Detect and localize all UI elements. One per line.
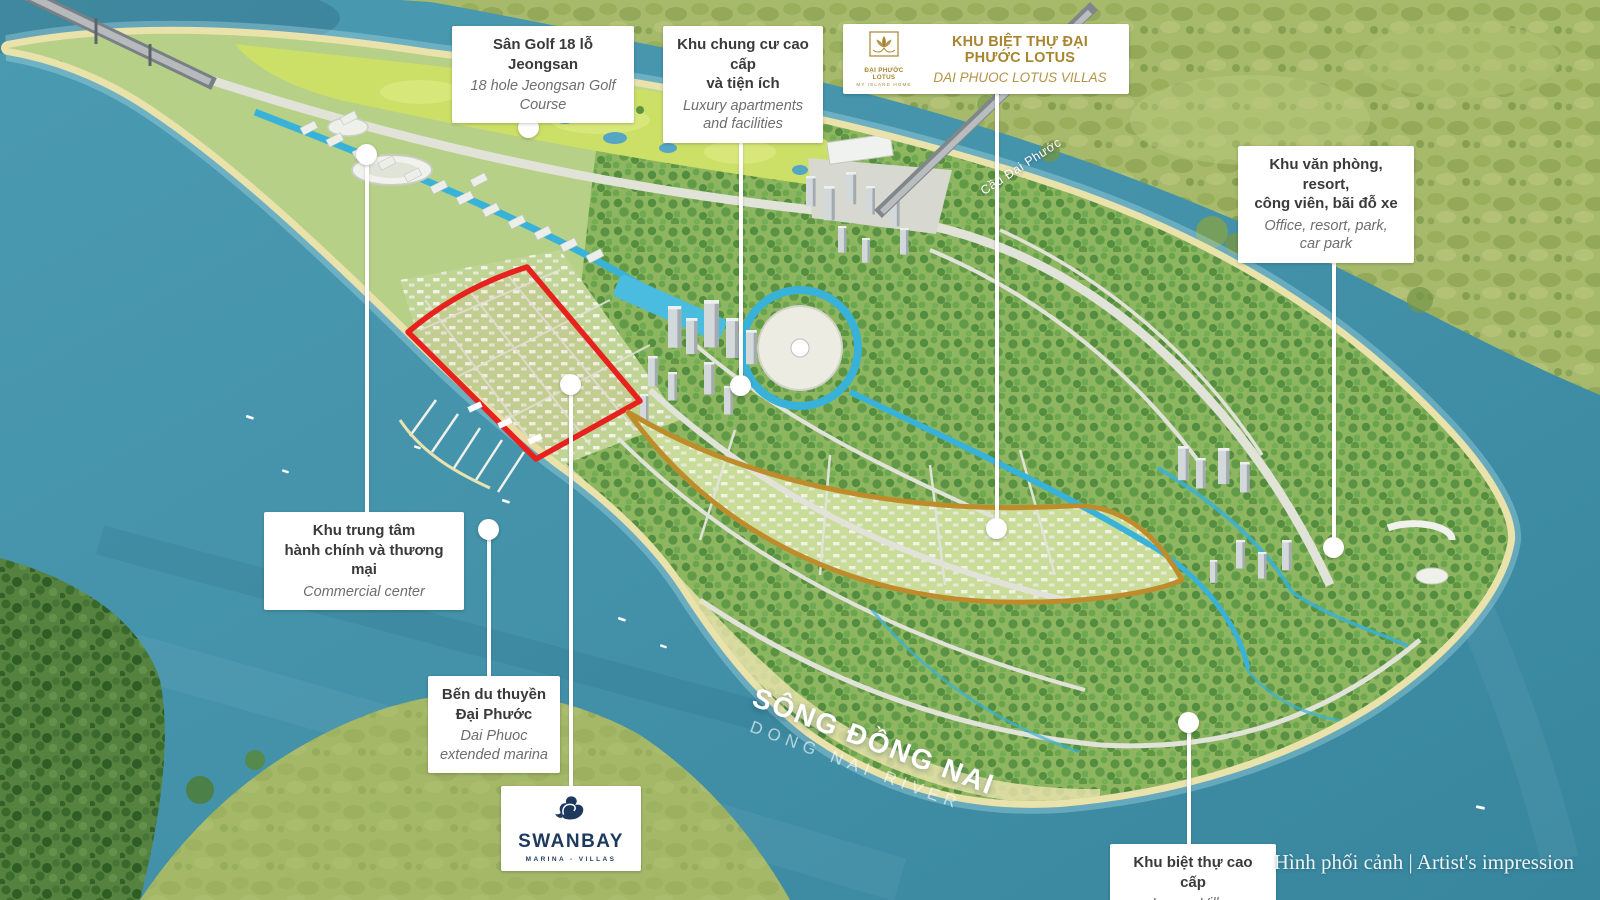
masterplan-screenshot: Sân Golf 18 lỗ Jeongsan 18 hole Jeongsan… [0,0,1600,900]
leader-dot-marina [478,519,499,540]
leader-line-swanbay [569,385,573,788]
label-marina-vi: Bến du thuyền Đại Phước [438,685,550,724]
label-lotus-title: KHU BIỆT THỰ ĐẠI PHƯỚC LOTUS [923,34,1117,66]
label-commercial-center: Khu trung tâm hành chính và thương mại C… [264,512,464,610]
leader-line-office [1332,237,1336,551]
lotus-flower-icon [865,31,903,61]
leader-dot-office [1323,537,1344,558]
label-luxury-en: Luxury Villas [1120,895,1266,900]
leader-line-luxury-villas [1187,723,1191,846]
leader-dot-luxury-villas [1178,712,1199,733]
artists-impression-caption: Hình phối cảnh | Artist's impression [1274,850,1574,875]
label-lotus-subtitle: DAI PHUOC LOTUS VILLAS [923,70,1117,85]
label-apartments: Khu chung cư cao cấp và tiện ích Luxury … [663,26,823,143]
label-luxury-vi: Khu biệt thự cao cấp [1120,853,1266,892]
label-office-resort: Khu văn phòng, resort, công viên, bãi đỗ… [1238,146,1414,263]
label-marina-en: Dai Phuoc extended marina [438,727,550,764]
label-golf-vi: Sân Golf 18 lỗ Jeongsan [462,35,624,74]
label-commercial-vi: Khu trung tâm hành chính và thương mại [274,521,454,580]
lotus-logo-tagline: MY ISLAND HOME [855,82,913,87]
swanbay-name: SWANBAY [507,831,635,853]
label-marina: Bến du thuyền Đại Phước Dai Phuoc extend… [428,676,560,773]
leader-line-apartments [739,101,743,389]
leader-dot-commercial [356,144,377,165]
label-swanbay-logo: SWANBAY MARINA - VILLAS [501,786,641,871]
leader-dot-swanbay [560,374,581,395]
label-apartments-vi: Khu chung cư cao cấp và tiện ích [673,35,813,94]
leader-line-lotus [995,88,999,532]
leader-dot-lotus [986,518,1007,539]
label-commercial-en: Commercial center [274,583,454,602]
swanbay-swan-icon [552,794,590,824]
leader-line-commercial [365,152,369,514]
leader-dot-apartments [730,375,751,396]
leader-line-marina [487,530,491,678]
lotus-logo-name: ĐẠI PHƯỚC LOTUS [855,67,913,81]
label-golf-course: Sân Golf 18 lỗ Jeongsan 18 hole Jeongsan… [452,26,634,123]
label-apartments-en: Luxury apartments and facilities [673,97,813,134]
label-golf-en: 18 hole Jeongsan Golf Course [462,77,624,114]
label-luxury-villas: Khu biệt thự cao cấp Luxury Villas [1110,844,1276,900]
dai-phuoc-lotus-logo: ĐẠI PHƯỚC LOTUS MY ISLAND HOME [855,31,913,87]
label-office-en: Office, resort, park, car park [1248,217,1404,254]
label-dai-phuoc-lotus: ĐẠI PHƯỚC LOTUS MY ISLAND HOME KHU BIỆT … [843,24,1129,94]
swanbay-tagline: MARINA - VILLAS [507,856,635,863]
label-office-vi: Khu văn phòng, resort, công viên, bãi đỗ… [1248,155,1404,214]
